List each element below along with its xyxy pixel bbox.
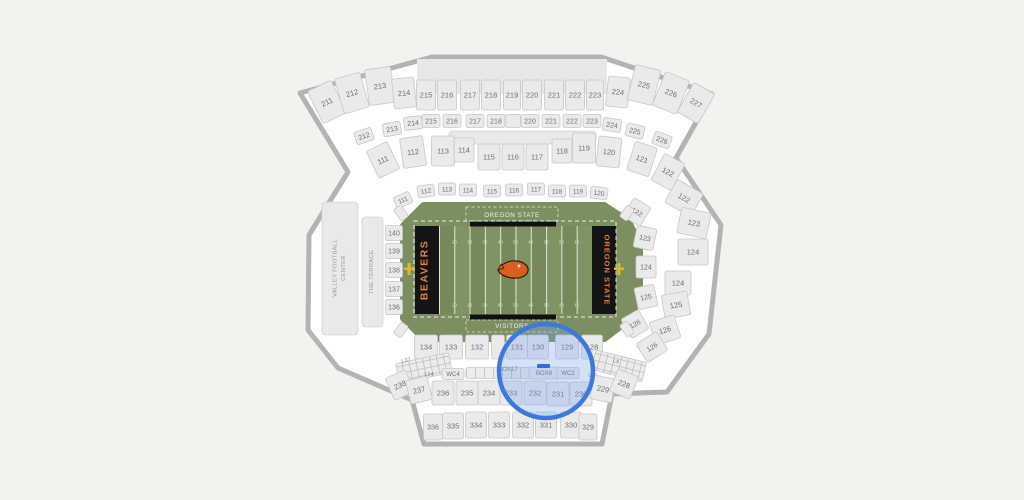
section-137[interactable]: 137 <box>386 282 403 297</box>
selected-seat-marker[interactable] <box>537 364 550 368</box>
section-213[interactable]: 213 <box>365 66 396 105</box>
stadium-seat-map: VALLEY FOOTBALL CENTER THE TERRACE BEAVE… <box>0 0 1024 500</box>
section-114[interactable]: 114 <box>454 138 474 162</box>
section-123[interactable]: 123 <box>677 207 712 239</box>
section-221[interactable]: 221 <box>542 115 560 128</box>
the-terrace: THE TERRACE <box>362 217 383 327</box>
yard-number: 20 <box>559 303 565 308</box>
section-113[interactable]: 113 <box>439 183 456 195</box>
section-215[interactable]: 215 <box>417 80 436 110</box>
section-213[interactable]: 213 <box>382 121 402 137</box>
section-215[interactable]: 215 <box>422 115 440 128</box>
section-334[interactable]: 334 <box>466 412 487 438</box>
yard-number: 20 <box>559 240 565 245</box>
yard-number: 40 <box>528 303 534 308</box>
section-218[interactable]: 218 <box>482 80 501 110</box>
section-235[interactable]: 235 <box>456 381 478 405</box>
section-217[interactable]: 217 <box>466 115 484 128</box>
section-218[interactable]: 218 <box>487 115 505 128</box>
section-217[interactable]: 217 <box>461 80 480 110</box>
visitors-bench <box>470 315 556 320</box>
selection-highlight-circle <box>499 324 593 418</box>
section-119[interactable]: 119 <box>573 133 596 163</box>
section-220[interactable]: 220 <box>521 115 539 128</box>
section-335[interactable]: 335 <box>443 413 464 439</box>
yard-number: 10 <box>574 303 580 308</box>
section-139[interactable]: 139 <box>386 244 403 259</box>
section-222[interactable]: 222 <box>563 115 581 128</box>
section-138[interactable]: 138 <box>386 263 403 278</box>
section-223[interactable]: 223 <box>587 80 604 110</box>
section-124[interactable]: 124 <box>678 239 708 265</box>
section-221[interactable]: 221 <box>545 80 564 110</box>
yard-number: 20 <box>467 240 473 245</box>
yard-number: 10 <box>452 240 458 245</box>
section-136[interactable]: 136 <box>386 300 403 315</box>
section-236[interactable]: 236 <box>432 381 454 405</box>
section-219[interactable]: 219 <box>504 80 521 110</box>
section-125[interactable]: 125 <box>661 291 691 319</box>
section-216[interactable]: 216 <box>443 115 461 128</box>
section-118[interactable]: 118 <box>549 185 566 197</box>
yard-numbers-bottom: 102030405040302010 <box>452 303 580 308</box>
section-115[interactable]: 115 <box>478 144 500 170</box>
section-333[interactable]: 333 <box>489 412 510 438</box>
section-223[interactable]: 223 <box>583 115 601 128</box>
section-118[interactable]: 118 <box>552 139 572 163</box>
yard-number: 30 <box>482 303 488 308</box>
section-115[interactable]: 115 <box>484 185 501 197</box>
yard-number: 50 <box>513 240 519 245</box>
yard-number: 30 <box>544 303 550 308</box>
yard-number: 30 <box>482 240 488 245</box>
yard-number: 40 <box>498 240 504 245</box>
endzone-west-label: BEAVERS <box>419 240 431 300</box>
section-123[interactable]: 123 <box>633 225 657 251</box>
section-132[interactable]: 132 <box>466 335 489 359</box>
yard-number: 40 <box>498 303 504 308</box>
yard-number: 20 <box>467 303 473 308</box>
section-336[interactable]: 336 <box>424 414 443 440</box>
section-WC4[interactable]: WC4 <box>442 369 464 380</box>
yard-number: 30 <box>544 240 550 245</box>
section-234[interactable]: 234 <box>478 381 500 405</box>
section-117[interactable]: 117 <box>528 183 545 195</box>
yard-number: 40 <box>528 240 534 245</box>
section-120[interactable]: 120 <box>590 186 609 200</box>
section-unlabeled[interactable] <box>506 115 521 128</box>
section-216[interactable]: 216 <box>438 80 457 110</box>
section-124[interactable]: 124 <box>636 256 656 278</box>
section-119[interactable]: 119 <box>570 185 587 197</box>
valley-football-center: VALLEY FOOTBALL CENTER <box>322 202 358 335</box>
section-224[interactable]: 224 <box>602 117 622 132</box>
endzone-east-label: OREGON STATE <box>603 235 612 306</box>
vfc-label-line1: VALLEY FOOTBALL <box>333 239 339 297</box>
home-sideline-label: OREGON STATE <box>484 212 539 219</box>
section-116[interactable]: 116 <box>502 144 524 170</box>
yard-numbers-top: 102030405040302010 <box>452 240 580 245</box>
section-112[interactable]: 112 <box>400 136 427 169</box>
section-114[interactable]: 114 <box>460 184 477 196</box>
section-222[interactable]: 222 <box>566 80 585 110</box>
section-214[interactable]: 214 <box>403 116 422 131</box>
terrace-label: THE TERRACE <box>369 250 375 294</box>
yard-number: 10 <box>574 240 580 245</box>
section-117[interactable]: 117 <box>526 144 548 170</box>
section-124[interactable]: 124 <box>665 271 691 295</box>
home-bench <box>470 222 556 227</box>
yard-number: 10 <box>452 303 458 308</box>
section-112[interactable]: 112 <box>417 184 436 198</box>
vfc-label-line2: CENTER <box>341 255 347 281</box>
section-120[interactable]: 120 <box>596 136 622 168</box>
section-224[interactable]: 224 <box>605 76 630 108</box>
section-329[interactable]: 329 <box>579 414 597 440</box>
section-113[interactable]: 113 <box>432 136 455 166</box>
section-220[interactable]: 220 <box>523 80 542 110</box>
section-140[interactable]: 140 <box>386 226 403 241</box>
section-116[interactable]: 116 <box>506 184 523 196</box>
valley-football-center-building <box>322 202 358 335</box>
section-214[interactable]: 214 <box>391 77 416 109</box>
yard-number: 50 <box>513 303 519 308</box>
section-125[interactable]: 125 <box>634 284 658 310</box>
